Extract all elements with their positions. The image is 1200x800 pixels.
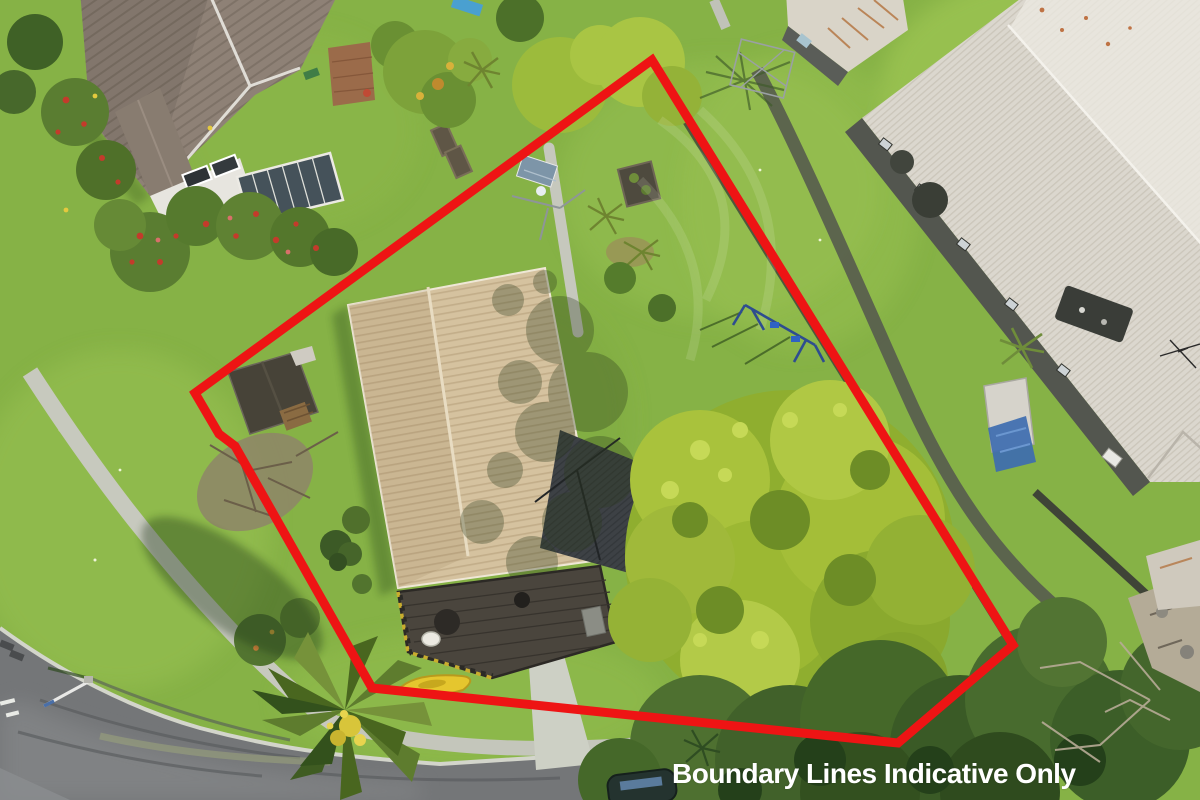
boundary-disclaimer-caption: Boundary Lines Indicative Only bbox=[672, 758, 1076, 790]
red-bucket bbox=[363, 89, 371, 97]
entry-porch bbox=[890, 150, 914, 174]
satellite-dish bbox=[422, 632, 440, 646]
aerial-photo-stage: Boundary Lines Indicative Only bbox=[0, 0, 1200, 800]
garden-bush bbox=[604, 262, 636, 294]
garden-bush bbox=[648, 294, 676, 322]
entry-porch bbox=[912, 182, 948, 218]
satellite-dish-mount bbox=[434, 609, 460, 635]
swing-seat bbox=[791, 336, 800, 342]
bbq bbox=[514, 592, 530, 608]
swing-seat bbox=[770, 322, 779, 328]
aerial-photo bbox=[0, 0, 1200, 800]
